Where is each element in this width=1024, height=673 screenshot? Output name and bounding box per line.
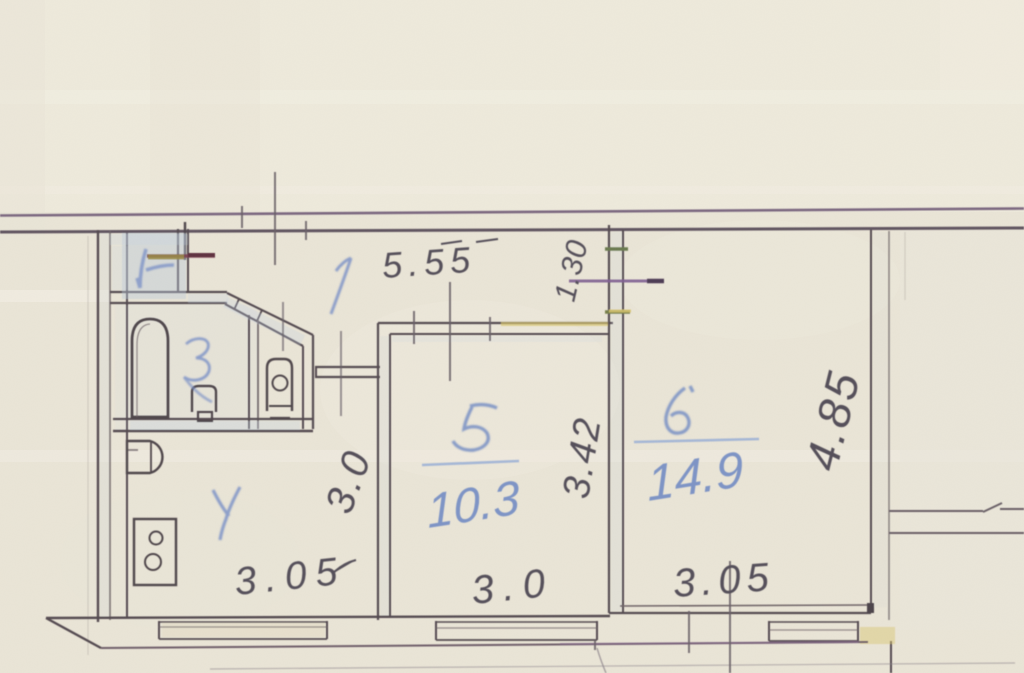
svg-text:3.0: 3.0 [469,561,556,613]
svg-text:5.55: 5.55 [381,239,478,286]
svg-text:3.05: 3.05 [672,555,777,606]
